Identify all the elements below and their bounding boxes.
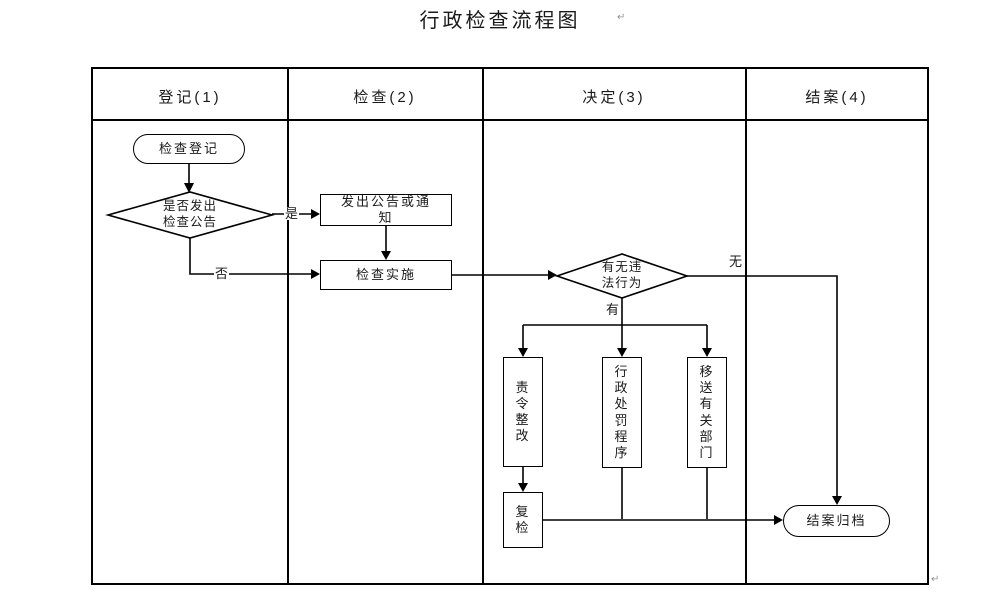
edge-label-yes: 是 — [284, 207, 299, 220]
decision-violation-label: 有无违 法行为 — [572, 255, 672, 297]
order-rectify-box: 责 令 整 改 — [503, 357, 543, 467]
edge-label-has: 有 — [605, 303, 620, 316]
flowchart-page: 行政检查流程图 ↵ 登记(1) 检查(2) 决定(3) 结案(4) — [0, 0, 1000, 607]
punish-procedure-box: 行 政 处 罚 程 序 — [602, 357, 642, 468]
edge-label-none: 无 — [728, 255, 743, 268]
edge-label-no: 否 — [214, 267, 229, 280]
recheck-box: 复 检 — [503, 492, 543, 548]
implement-box: 检查实施 — [320, 260, 452, 290]
paragraph-mark-end: ↵ — [931, 574, 939, 585]
issue-notice-box: 发出公告或通 知 — [320, 194, 452, 226]
close-archive-terminator: 结案归档 — [783, 505, 890, 537]
start-terminator: 检查登记 — [133, 134, 245, 164]
decision-notice-label: 是否发出 检查公告 — [130, 193, 250, 237]
transfer-dept-box: 移 送 有 关 部 门 — [687, 357, 727, 468]
